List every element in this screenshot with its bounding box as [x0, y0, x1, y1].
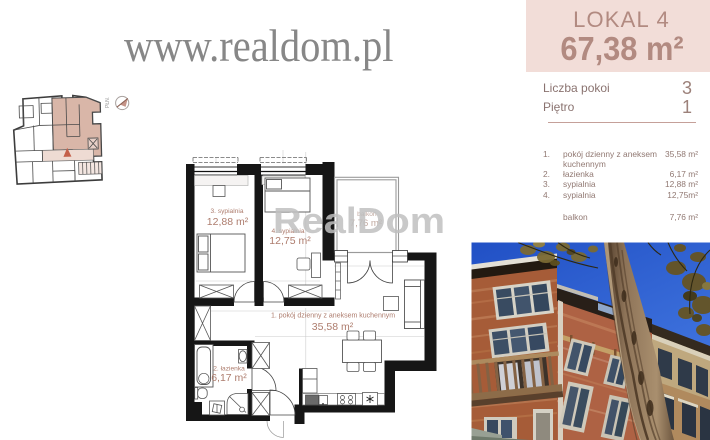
svg-text:12,88 m²: 12,88 m²: [207, 216, 249, 228]
svg-text:35,58 m²: 35,58 m²: [312, 321, 354, 333]
svg-text:PŁN.: PŁN.: [105, 97, 111, 108]
svg-text:RealDom: RealDom: [273, 200, 445, 241]
svg-text:3. sypialnia: 3. sypialnia: [211, 208, 244, 215]
svg-text:6,17 m²: 6,17 m²: [211, 372, 247, 384]
svg-text:1. pokój dzienny z aneksem kuc: 1. pokój dzienny z aneksem kuchennym: [271, 313, 395, 320]
